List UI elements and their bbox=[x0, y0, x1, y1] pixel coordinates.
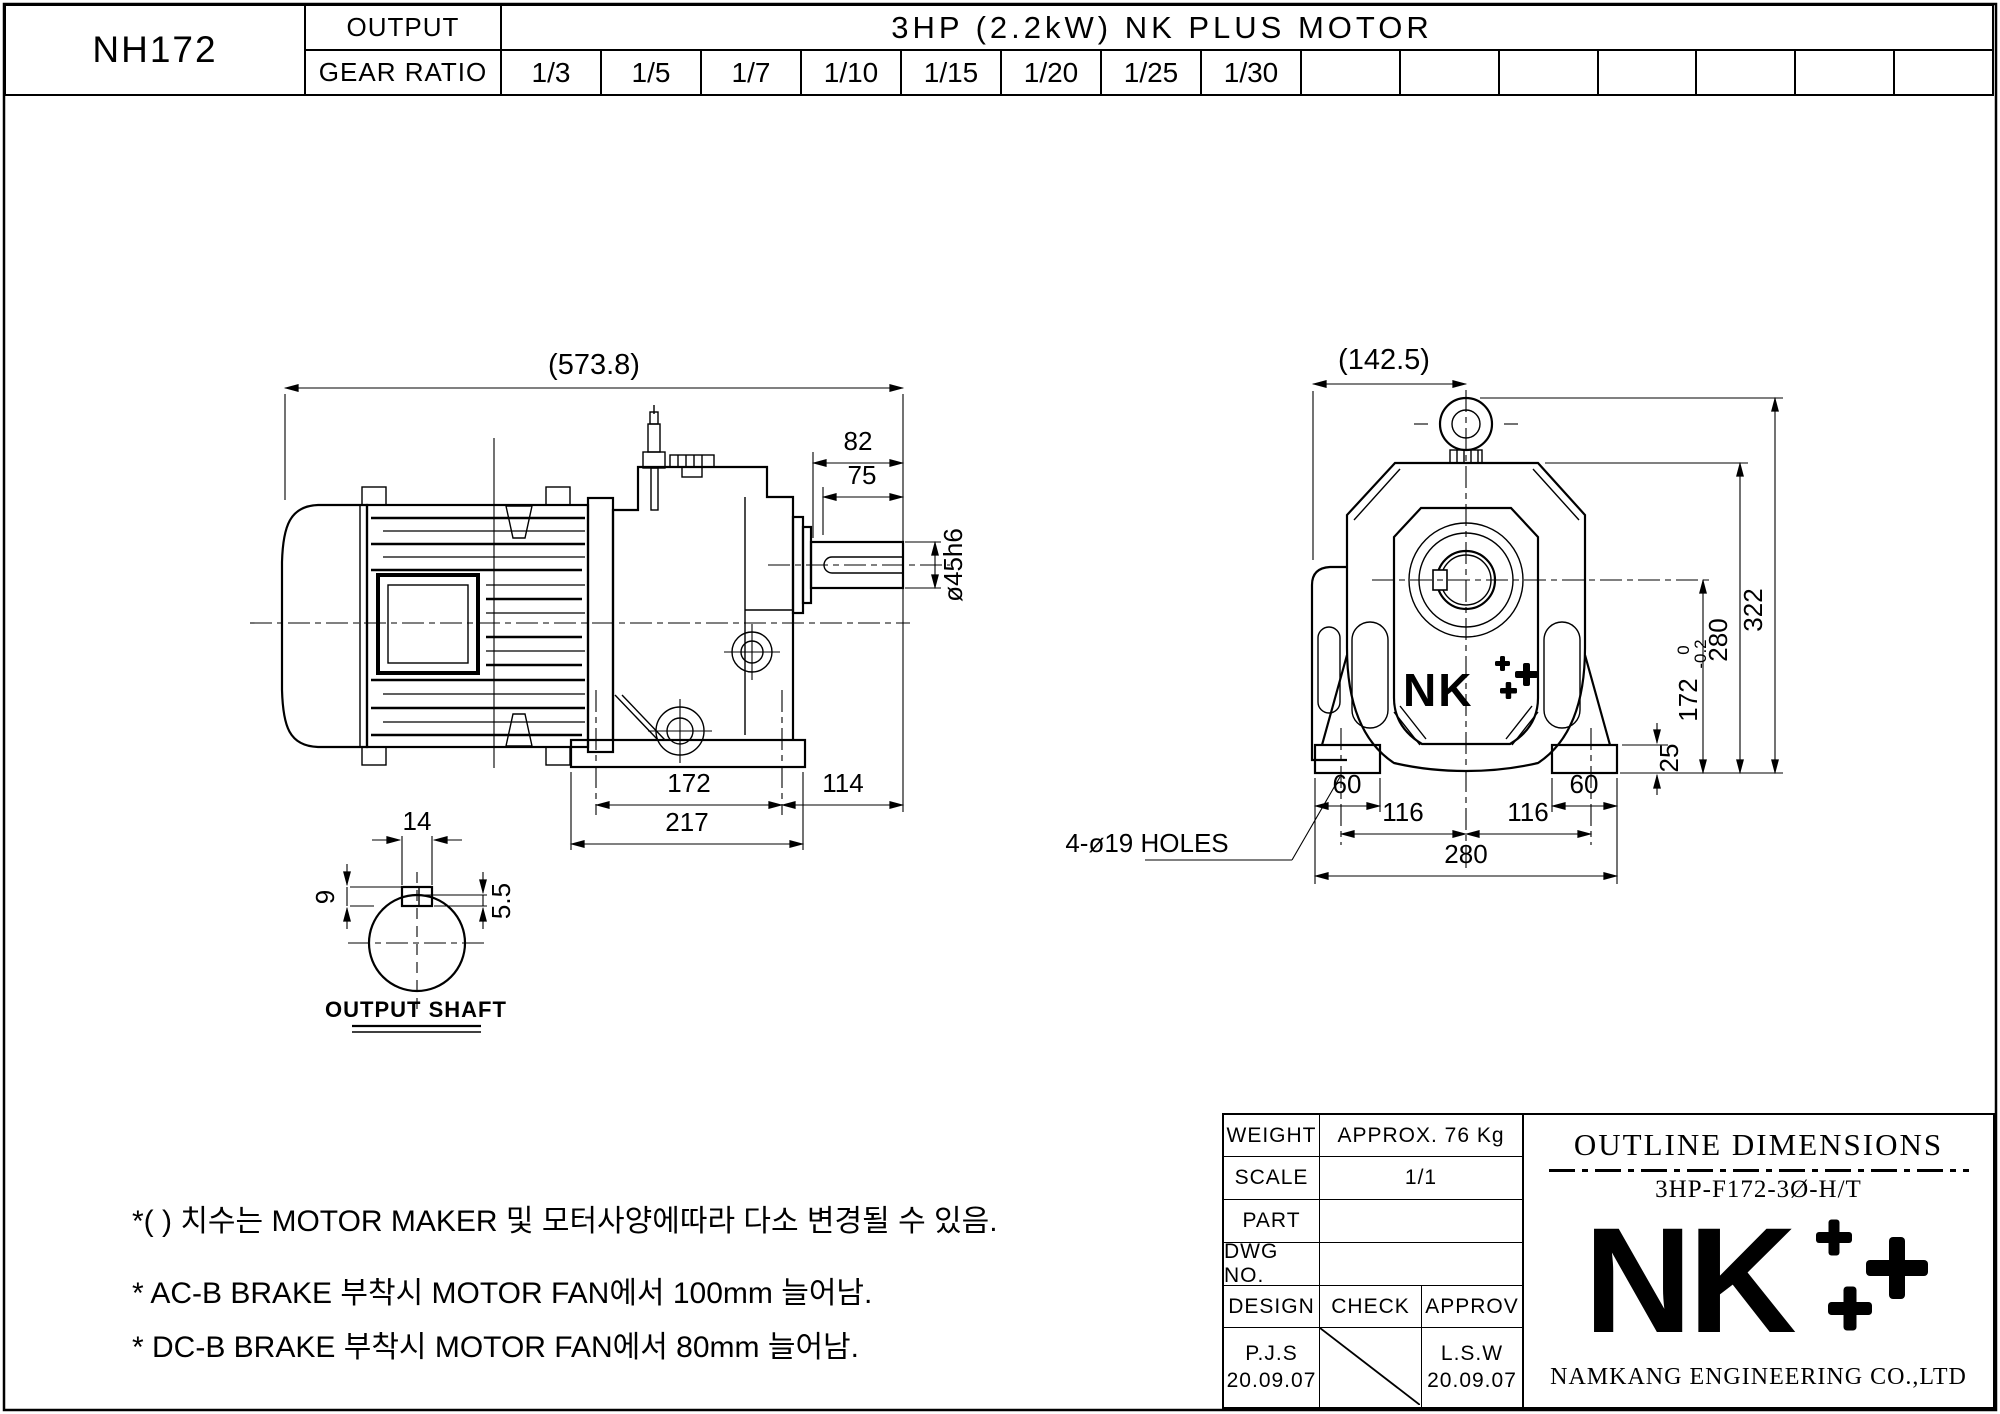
title-block-logo-area: OUTLINE DIMENSIONS 3HP-F172-3Ø-H/T NK NA… bbox=[1524, 1115, 1993, 1407]
rotor-window bbox=[378, 575, 478, 673]
title-block: WEIGHT APPROX. 76 Kg SCALE 1/1 PART DWG … bbox=[1222, 1113, 1995, 1409]
bolt-hole bbox=[648, 699, 712, 763]
output-shaft-label: OUTPUT SHAFT bbox=[325, 997, 507, 1022]
front-view-dimensions: (142.5) 322 280 172 0 -0.2 25 bbox=[1065, 344, 1783, 884]
dim-322: 322 bbox=[1738, 588, 1768, 631]
housing-logo-sparkles bbox=[1495, 656, 1538, 699]
output-shaft-detail: 14 9 5.5 OUTPUT SHAFT bbox=[310, 806, 516, 1032]
part-value bbox=[1320, 1200, 1522, 1242]
doc-code: 3HP-F172-3Ø-H/T bbox=[1655, 1176, 1862, 1204]
side-view: (573.8) 82 75 ø45h6 172 114 217 bbox=[250, 349, 968, 850]
dim-172-tol: 172 bbox=[1673, 678, 1703, 721]
dim-82: 82 bbox=[844, 426, 873, 456]
gearbox bbox=[613, 467, 793, 740]
doc-title-rule bbox=[1549, 1169, 1969, 1172]
holes-note: 4-ø19 HOLES bbox=[1065, 828, 1228, 858]
weight-label: WEIGHT bbox=[1224, 1115, 1320, 1156]
dim-116-right: 116 bbox=[1507, 797, 1548, 827]
dim-center-offset: (142.5) bbox=[1338, 344, 1430, 376]
dim-75: 75 bbox=[848, 460, 877, 490]
dim-114: 114 bbox=[822, 768, 863, 798]
company-name: NAMKANG ENGINEERING CO.,LTD bbox=[1550, 1364, 1967, 1391]
company-logo-text: NK bbox=[1584, 1208, 1795, 1358]
dim-key-width: 14 bbox=[403, 806, 432, 836]
dim-280-base: 280 bbox=[1444, 839, 1487, 869]
dim-116-left: 116 bbox=[1382, 797, 1423, 827]
dim-key-protrusion: 5.5 bbox=[486, 883, 516, 919]
check-signature bbox=[1320, 1328, 1422, 1407]
dwg-no-label: DWG NO. bbox=[1224, 1243, 1320, 1285]
weight-value: APPROX. 76 Kg bbox=[1320, 1115, 1522, 1156]
note-3: * DC-B BRAKE 부착시 MOTOR FAN에서 80mm 늘어남. bbox=[132, 1322, 859, 1366]
adapter-flange bbox=[588, 498, 613, 752]
dim-shaft-dia: ø45h6 bbox=[938, 528, 968, 602]
dim-60-left: 60 bbox=[1333, 769, 1362, 799]
front-view: NK bbox=[1065, 344, 1783, 884]
dim-217: 217 bbox=[665, 807, 708, 837]
design-label: DESIGN bbox=[1224, 1286, 1320, 1327]
note-2: * AC-B BRAKE 부착시 MOTOR FAN에서 100mm 늘어남. bbox=[132, 1268, 872, 1312]
vent-pipe bbox=[643, 405, 665, 510]
part-label: PART bbox=[1224, 1200, 1320, 1242]
drawing-sheet: NH172 OUTPUT GEAR RATIO 3HP (2.2kW) NK P… bbox=[0, 0, 2000, 1414]
company-logo: NK bbox=[1584, 1208, 1934, 1358]
scale-value: 1/1 bbox=[1320, 1157, 1522, 1199]
scale-label: SCALE bbox=[1224, 1157, 1320, 1199]
side-bracket bbox=[1312, 567, 1347, 760]
design-signature: P.J.S 20.09.07 bbox=[1224, 1328, 1320, 1407]
approv-signature: L.S.W 20.09.07 bbox=[1422, 1328, 1522, 1407]
doc-title: OUTLINE DIMENSIONS bbox=[1574, 1127, 1943, 1163]
housing-logo: NK bbox=[1403, 664, 1473, 716]
company-logo-sparkles bbox=[1816, 1220, 1928, 1331]
dim-25: 25 bbox=[1654, 744, 1684, 773]
check-label: CHECK bbox=[1320, 1286, 1422, 1327]
dim-172-tol-lower: -0.2 bbox=[1691, 639, 1710, 668]
dim-overall-length: (573.8) bbox=[548, 349, 640, 381]
dim-172: 172 bbox=[667, 768, 710, 798]
note-1: *( ) 치수는 MOTOR MAKER 및 모터사양에따라 다소 변경될 수 … bbox=[132, 1196, 998, 1240]
fan-cover bbox=[282, 505, 367, 747]
approv-label: APPROV bbox=[1422, 1286, 1522, 1327]
bolt-hole bbox=[724, 624, 780, 680]
dwg-no-value bbox=[1320, 1243, 1522, 1285]
title-block-table: WEIGHT APPROX. 76 Kg SCALE 1/1 PART DWG … bbox=[1224, 1115, 1524, 1407]
dim-keyway-height: 9 bbox=[310, 890, 340, 904]
dim-60-right: 60 bbox=[1570, 769, 1599, 799]
